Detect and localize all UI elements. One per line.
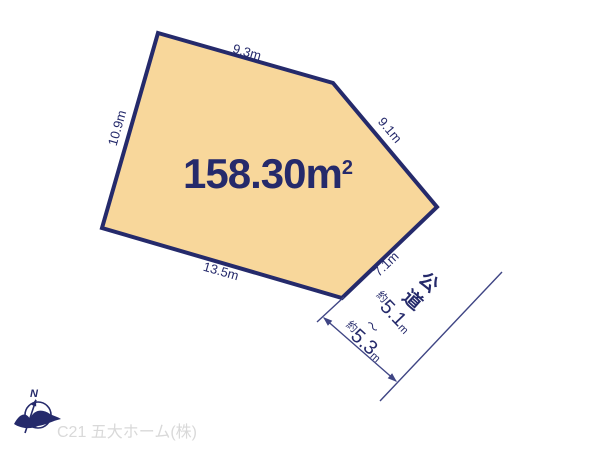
compass-bird-shape xyxy=(14,411,61,429)
land-plot-diagram: 158.30m2 9.3m 10.9m 9.1m 7.1m 13.5m 公道 約… xyxy=(0,0,600,450)
plot-area-label: 158.30m2 xyxy=(183,150,353,198)
boundary-extension-line xyxy=(317,297,344,322)
plot-area-value: 158.30m xyxy=(183,150,342,197)
company-watermark: C21 五大ホーム(株) xyxy=(57,418,197,442)
diagram-shapes xyxy=(0,0,600,450)
compass-icon xyxy=(14,399,61,433)
compass-north-label: N xyxy=(30,388,38,400)
plot-area-superscript: 2 xyxy=(342,157,353,179)
